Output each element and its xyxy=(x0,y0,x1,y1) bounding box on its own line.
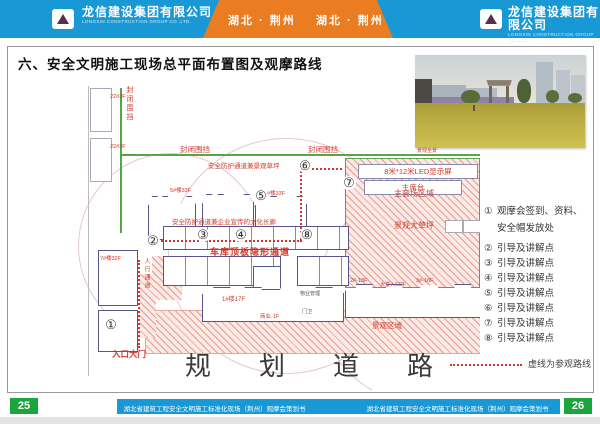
footer-doc-title-left: 湖北省建筑工程安全文明施工标准化现场（荆州）观摩会策划书 xyxy=(122,403,307,413)
footer-bar: 湖北省建筑工程安全文明施工标准化现场（荆州）观摩会策划书 湖北省建筑工程安全文明… xyxy=(117,399,560,414)
label-enclosure-vertical: 封闭围挡 xyxy=(124,86,134,122)
label-garage-passage: 车库顶板隐形通道 xyxy=(210,245,290,258)
enclosure-line-horizontal xyxy=(120,154,480,156)
label-building-22a: 22#3F xyxy=(110,94,126,100)
company-name-left: 龙信建设集团有限公司 LONGXIN CONSTRUCTION GROUP CO… xyxy=(82,6,212,25)
photo-pavilion-post xyxy=(506,86,509,105)
site-photo xyxy=(415,55,585,148)
led-screen-box: 8米*12米LED显示屏 xyxy=(358,164,478,179)
legend-item-8: ⑧引导及讲解点 xyxy=(484,330,598,344)
plan-marker-5: ⑤ xyxy=(254,189,268,203)
logo-triangle-icon xyxy=(485,14,497,24)
legend-item-3: ③引导及讲解点 xyxy=(484,255,598,269)
logo-triangle-icon xyxy=(57,14,69,24)
photo-tree xyxy=(568,93,582,103)
plan-marker-8: ⑧ xyxy=(300,228,314,242)
label-landscape-area: 景观区域 xyxy=(372,320,402,331)
company-name-cn: 龙信建设集团有限公司 xyxy=(82,6,212,19)
label-planned-road: 规划道路 xyxy=(185,346,480,383)
building-22b xyxy=(90,138,112,182)
legend-item-7: ⑦引导及讲解点 xyxy=(484,315,598,329)
enclosure-line-vertical xyxy=(120,88,122,233)
page-number-left: 25 xyxy=(10,398,38,414)
page-number-right: 26 xyxy=(564,398,592,414)
label-enclosure-right: 封闭围挡 xyxy=(308,144,338,155)
legend-item-1: ①观摩会签到、资料、 安全帽发放处 xyxy=(484,203,598,234)
label-guard: 门卫 xyxy=(302,308,312,315)
label-building-3: 3#-18F xyxy=(416,278,433,284)
footer-doc-title-right: 湖北省建筑工程安全文明施工标准化现场（荆州）观摩会策划书 xyxy=(365,403,550,413)
stall-row xyxy=(297,256,349,286)
region-label-right: 湖北 · 荆州 xyxy=(316,12,384,28)
company-name-en: LONGXIN CONSTRUCTION GROUP CO.,LTD. xyxy=(82,19,212,25)
photo-pavilion-post xyxy=(489,86,492,105)
label-lawn-corridor: 安全防护通道兼景观草坪 xyxy=(208,160,280,170)
photo-lawn xyxy=(415,103,585,148)
route-line xyxy=(138,260,140,348)
label-lobby: 大堂入口2F xyxy=(380,281,406,288)
page-edge xyxy=(0,417,600,424)
company-logo-right xyxy=(480,9,502,29)
label-property: 物业管理 xyxy=(300,290,320,297)
legend-item-6: ⑥引导及讲解点 xyxy=(484,300,598,314)
label-entrance-gate: 入口大门 xyxy=(112,348,146,360)
label-building-7: 7#楼32F xyxy=(100,254,121,262)
photo-caption: 景观全景 xyxy=(417,147,437,154)
label-commercial: 商业-1F xyxy=(260,312,279,320)
legend-item-5: ⑤引导及讲解点 xyxy=(484,285,598,299)
label-big-lawn: 景观大草坪 xyxy=(364,220,464,231)
building-22a xyxy=(90,88,112,132)
route-legend-note: 虚线为参观路线 xyxy=(528,357,600,370)
plan-marker-3: ③ xyxy=(196,228,210,242)
legend-num: ① xyxy=(484,206,497,217)
label-building-5: 5#楼33F xyxy=(170,186,191,194)
plan-boundary-line xyxy=(88,86,89,376)
service-box xyxy=(463,220,480,233)
legend-item-2: ②引导及讲解点 xyxy=(484,240,598,254)
company-logo-left xyxy=(52,9,74,29)
label-enclosure-left: 封闭围挡 xyxy=(180,144,210,155)
plan-marker-6: ⑥ xyxy=(298,159,312,173)
label-building-1: 1#楼17F xyxy=(222,294,245,303)
label-venue-area: 主会场区域 xyxy=(364,188,464,199)
photo-person xyxy=(473,105,476,111)
plan-marker-4: ④ xyxy=(234,228,248,242)
route-line xyxy=(150,240,302,242)
route-legend-line xyxy=(450,364,522,366)
company-name-right: 龙信建设集团有限公司 LONGXIN CONSTRUCTION GROUP CO… xyxy=(508,6,600,44)
label-building-2: 2#-18F xyxy=(350,278,367,284)
label-building-22b: 22#3F xyxy=(110,144,126,150)
plan-marker-2: ② xyxy=(146,234,160,248)
header-bar: 龙信建设集团有限公司 LONGXIN CONSTRUCTION GROUP CO… xyxy=(0,0,600,38)
site-plan: 8米*12米LED显示屏 主席台 封闭围挡 封闭围挡 封闭围挡 安全防护通道兼景… xyxy=(12,68,480,390)
region-label-left: 湖北 · 荆州 xyxy=(228,12,296,28)
label-culture-corridor: 安全防护通道兼企业宣传的文化长廊 xyxy=(172,216,276,226)
legend-item-1-line2: 安全帽发放处 xyxy=(484,220,598,234)
small-structure xyxy=(253,266,281,290)
building-west xyxy=(98,310,138,352)
plan-marker-1: ① xyxy=(104,318,118,332)
label-pedestrian: 人行通道 xyxy=(142,258,151,290)
slide-page: 龙信建设集团有限公司 LONGXIN CONSTRUCTION GROUP CO… xyxy=(0,0,600,417)
photo-tree xyxy=(461,90,480,104)
plan-marker-7: ⑦ xyxy=(342,176,356,190)
legend-item-4: ④引导及讲解点 xyxy=(484,270,598,284)
photo-tree xyxy=(517,79,531,103)
